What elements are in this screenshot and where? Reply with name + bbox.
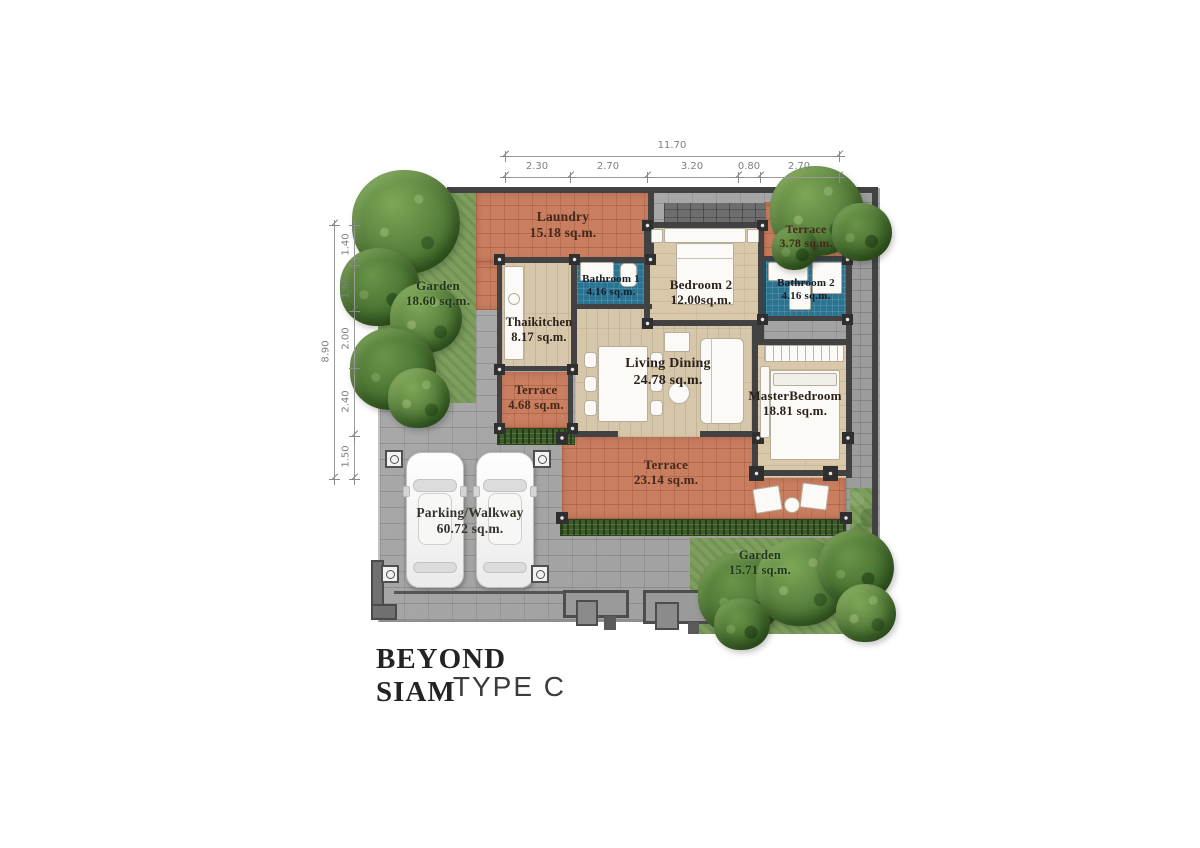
- sofa-seat-line: [711, 338, 712, 424]
- dim-tick: [349, 260, 360, 271]
- wall-kitchen-south: [497, 366, 577, 371]
- dim-tick: [349, 220, 360, 231]
- laundry-floor: [476, 192, 652, 262]
- dim-tick: [500, 151, 511, 162]
- wall-bedroom2-west: [644, 226, 650, 326]
- dim-left-seg: 1.50: [341, 417, 352, 497]
- light-post: [533, 450, 551, 468]
- bedroom2-bed: [676, 243, 734, 305]
- wall-east-outer: [846, 256, 852, 478]
- car-2: [476, 452, 534, 588]
- dim-left-overall: 8.90: [321, 312, 332, 392]
- tree: [714, 598, 770, 650]
- wall-living-south-left: [573, 431, 618, 437]
- dining-chair: [584, 376, 597, 392]
- tree: [836, 584, 896, 642]
- column-post: [567, 423, 578, 434]
- dim-top-seg: 2.70: [759, 161, 839, 172]
- kitchen-counter: [504, 266, 524, 360]
- floor-plan-page: Laundry 15.18 sq.m. Garden 18.60 sq.m. T…: [0, 0, 1200, 848]
- light-post: [381, 565, 399, 583]
- dim-tick: [565, 172, 576, 183]
- gate-tab: [604, 616, 616, 630]
- column-post: [842, 432, 854, 444]
- dining-chair: [650, 376, 663, 392]
- bathroom2-shower: [812, 262, 842, 294]
- column-post: [567, 364, 578, 375]
- entry-step-notch: [576, 600, 598, 626]
- terrace-lounge-chair: [752, 485, 783, 514]
- dim-top-seg: 2.70: [568, 161, 648, 172]
- dim-tick: [329, 474, 340, 485]
- gate-tab: [688, 622, 699, 634]
- dining-chair: [650, 400, 663, 416]
- terrace-round-table: [784, 497, 800, 513]
- master-pillows: [773, 373, 837, 386]
- dim-tick: [733, 172, 744, 183]
- tree: [388, 368, 450, 428]
- column-post: [494, 423, 505, 434]
- wall-kitchen-east: [571, 257, 577, 368]
- dim-tick: [834, 172, 845, 183]
- kitchen-sink: [508, 293, 520, 305]
- dim-tick: [834, 151, 845, 162]
- dim-tick: [349, 363, 360, 374]
- bathroom1-vanity: [580, 262, 614, 281]
- dim-tick: [349, 306, 360, 317]
- dim-tick: [349, 474, 360, 485]
- dining-table: [598, 346, 648, 422]
- master-wardrobe: [764, 345, 844, 362]
- wall-bedroom2-south: [644, 320, 764, 326]
- column-post: [494, 364, 505, 375]
- bedroom2-headboard: [664, 228, 746, 243]
- column-post: [569, 254, 580, 265]
- column-post: [757, 314, 768, 325]
- light-post: [531, 565, 549, 583]
- dim-top-overall: 11.70: [622, 140, 722, 151]
- column-post: [556, 512, 568, 524]
- plan-type-title: TYPE C: [420, 671, 566, 703]
- dining-chair: [650, 352, 663, 368]
- dim-tick: [349, 431, 360, 442]
- coffee-table: [668, 382, 690, 404]
- wall-bathroom2-south: [758, 316, 848, 321]
- dim-top-seg: 2.30: [497, 161, 577, 172]
- boundary-wall-foot: [371, 604, 397, 620]
- wall-living-south-right: [700, 431, 758, 437]
- dim-tick: [642, 172, 653, 183]
- column-post: [842, 314, 853, 325]
- column-post: [645, 254, 656, 265]
- dim-line: [334, 225, 335, 479]
- dining-chair: [584, 352, 597, 368]
- dim-tick: [755, 172, 766, 183]
- column-post: [556, 432, 568, 444]
- terrace-door-post: [823, 466, 838, 481]
- column-post: [642, 318, 653, 329]
- tree: [772, 226, 818, 270]
- bedroom2-nightstand: [651, 229, 663, 243]
- bed-fold-line: [676, 258, 734, 259]
- entry-step-notch: [655, 602, 679, 630]
- hedge-terrace-main: [560, 519, 846, 536]
- wall-terrace-small-east: [568, 371, 573, 428]
- master-side-cabinet: [760, 366, 770, 438]
- dim-tick: [500, 172, 511, 183]
- tv-cabinet: [664, 332, 690, 352]
- terrace-small-floor: [500, 372, 572, 428]
- terrace-lounge-chair: [800, 482, 830, 510]
- sofa: [700, 338, 744, 424]
- dining-chair: [584, 400, 597, 416]
- dim-tick: [329, 220, 340, 231]
- terrace-main-floor: [562, 437, 758, 519]
- dim-line: [505, 177, 839, 178]
- dim-line: [505, 156, 839, 157]
- bedroom2-nightstand: [747, 229, 759, 243]
- bathroom1-toilet: [620, 263, 637, 287]
- terrace-door-post: [749, 466, 764, 481]
- wall-bathroom1-south: [571, 304, 652, 309]
- tree: [832, 203, 892, 261]
- car-1: [406, 452, 464, 588]
- wall-west-outer: [497, 259, 502, 428]
- gate-rail: [394, 591, 564, 594]
- column-post: [840, 512, 852, 524]
- bathroom2-toilet: [789, 284, 811, 310]
- light-post: [385, 450, 403, 468]
- column-post: [494, 254, 505, 265]
